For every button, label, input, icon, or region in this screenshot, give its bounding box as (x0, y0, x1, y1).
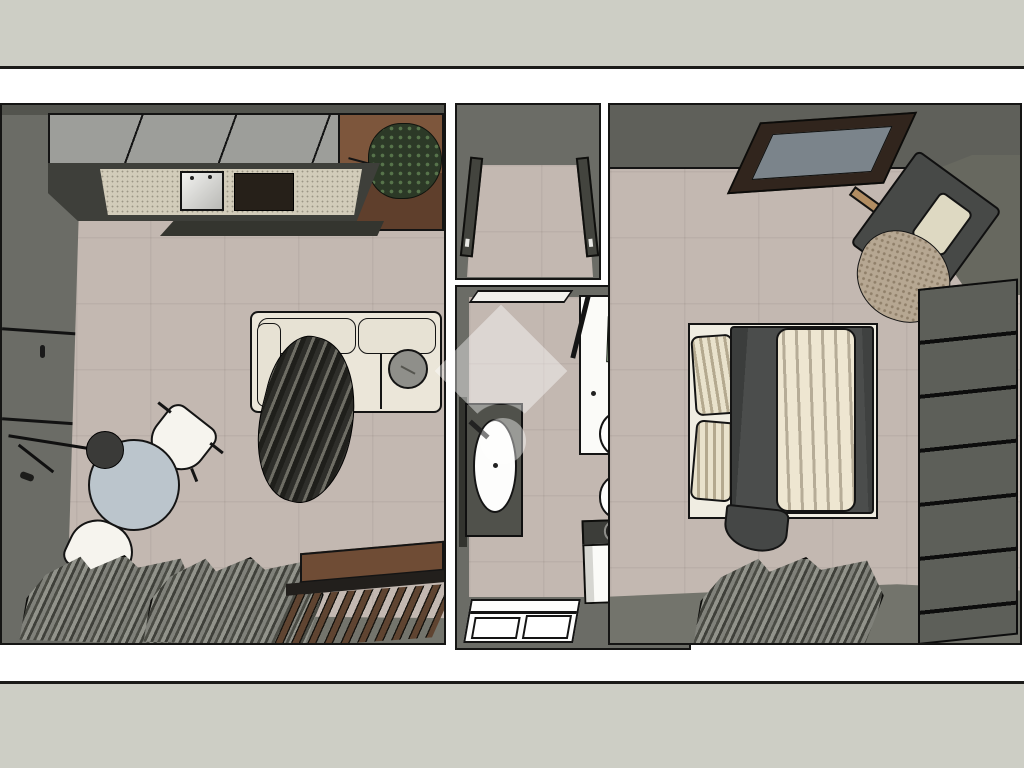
room-bedroom (608, 103, 1022, 645)
door-handle (465, 239, 470, 247)
kitchen-sink (180, 171, 224, 211)
shower-drain (591, 391, 596, 396)
chair-leg (157, 401, 171, 413)
hall-floor (467, 165, 593, 277)
slat-bench (284, 545, 446, 645)
window-pane (522, 615, 572, 639)
duvet-drape (722, 504, 790, 554)
chair-leg (190, 468, 198, 482)
door-handle (588, 239, 593, 247)
floor-lamp-shade (86, 431, 124, 469)
chair-leg (209, 442, 223, 454)
curtains (689, 557, 894, 645)
round-cushion (388, 349, 428, 389)
sofa-seat-divider (380, 353, 382, 409)
cushion-seam (400, 365, 415, 374)
floor-plan-render (0, 0, 1024, 768)
window-sill-line (470, 611, 577, 614)
sofa-back-cushion (358, 318, 436, 354)
bathroom-door (468, 290, 573, 303)
room-living-kitchen (0, 103, 446, 645)
cabinet-handle (40, 345, 45, 358)
faucet-dot (190, 176, 194, 180)
basin-drain (493, 463, 498, 468)
counter-front-edge (160, 221, 384, 236)
faucet-dot (208, 175, 212, 179)
bottom-frame-band (0, 681, 1024, 768)
window-pane (471, 617, 521, 639)
striped-blanket (776, 328, 856, 512)
countertop (100, 169, 362, 215)
cooktop (234, 173, 294, 211)
room-entry-hall (455, 103, 601, 280)
cabinet-divider-line (2, 327, 82, 336)
cabinet-divider-line (2, 417, 82, 426)
top-frame-band (0, 0, 1024, 69)
bathroom-window (463, 599, 581, 643)
plant (368, 123, 442, 199)
wardrobe (918, 278, 1018, 645)
double-bed (688, 323, 878, 519)
washbasin-counter (465, 403, 523, 537)
